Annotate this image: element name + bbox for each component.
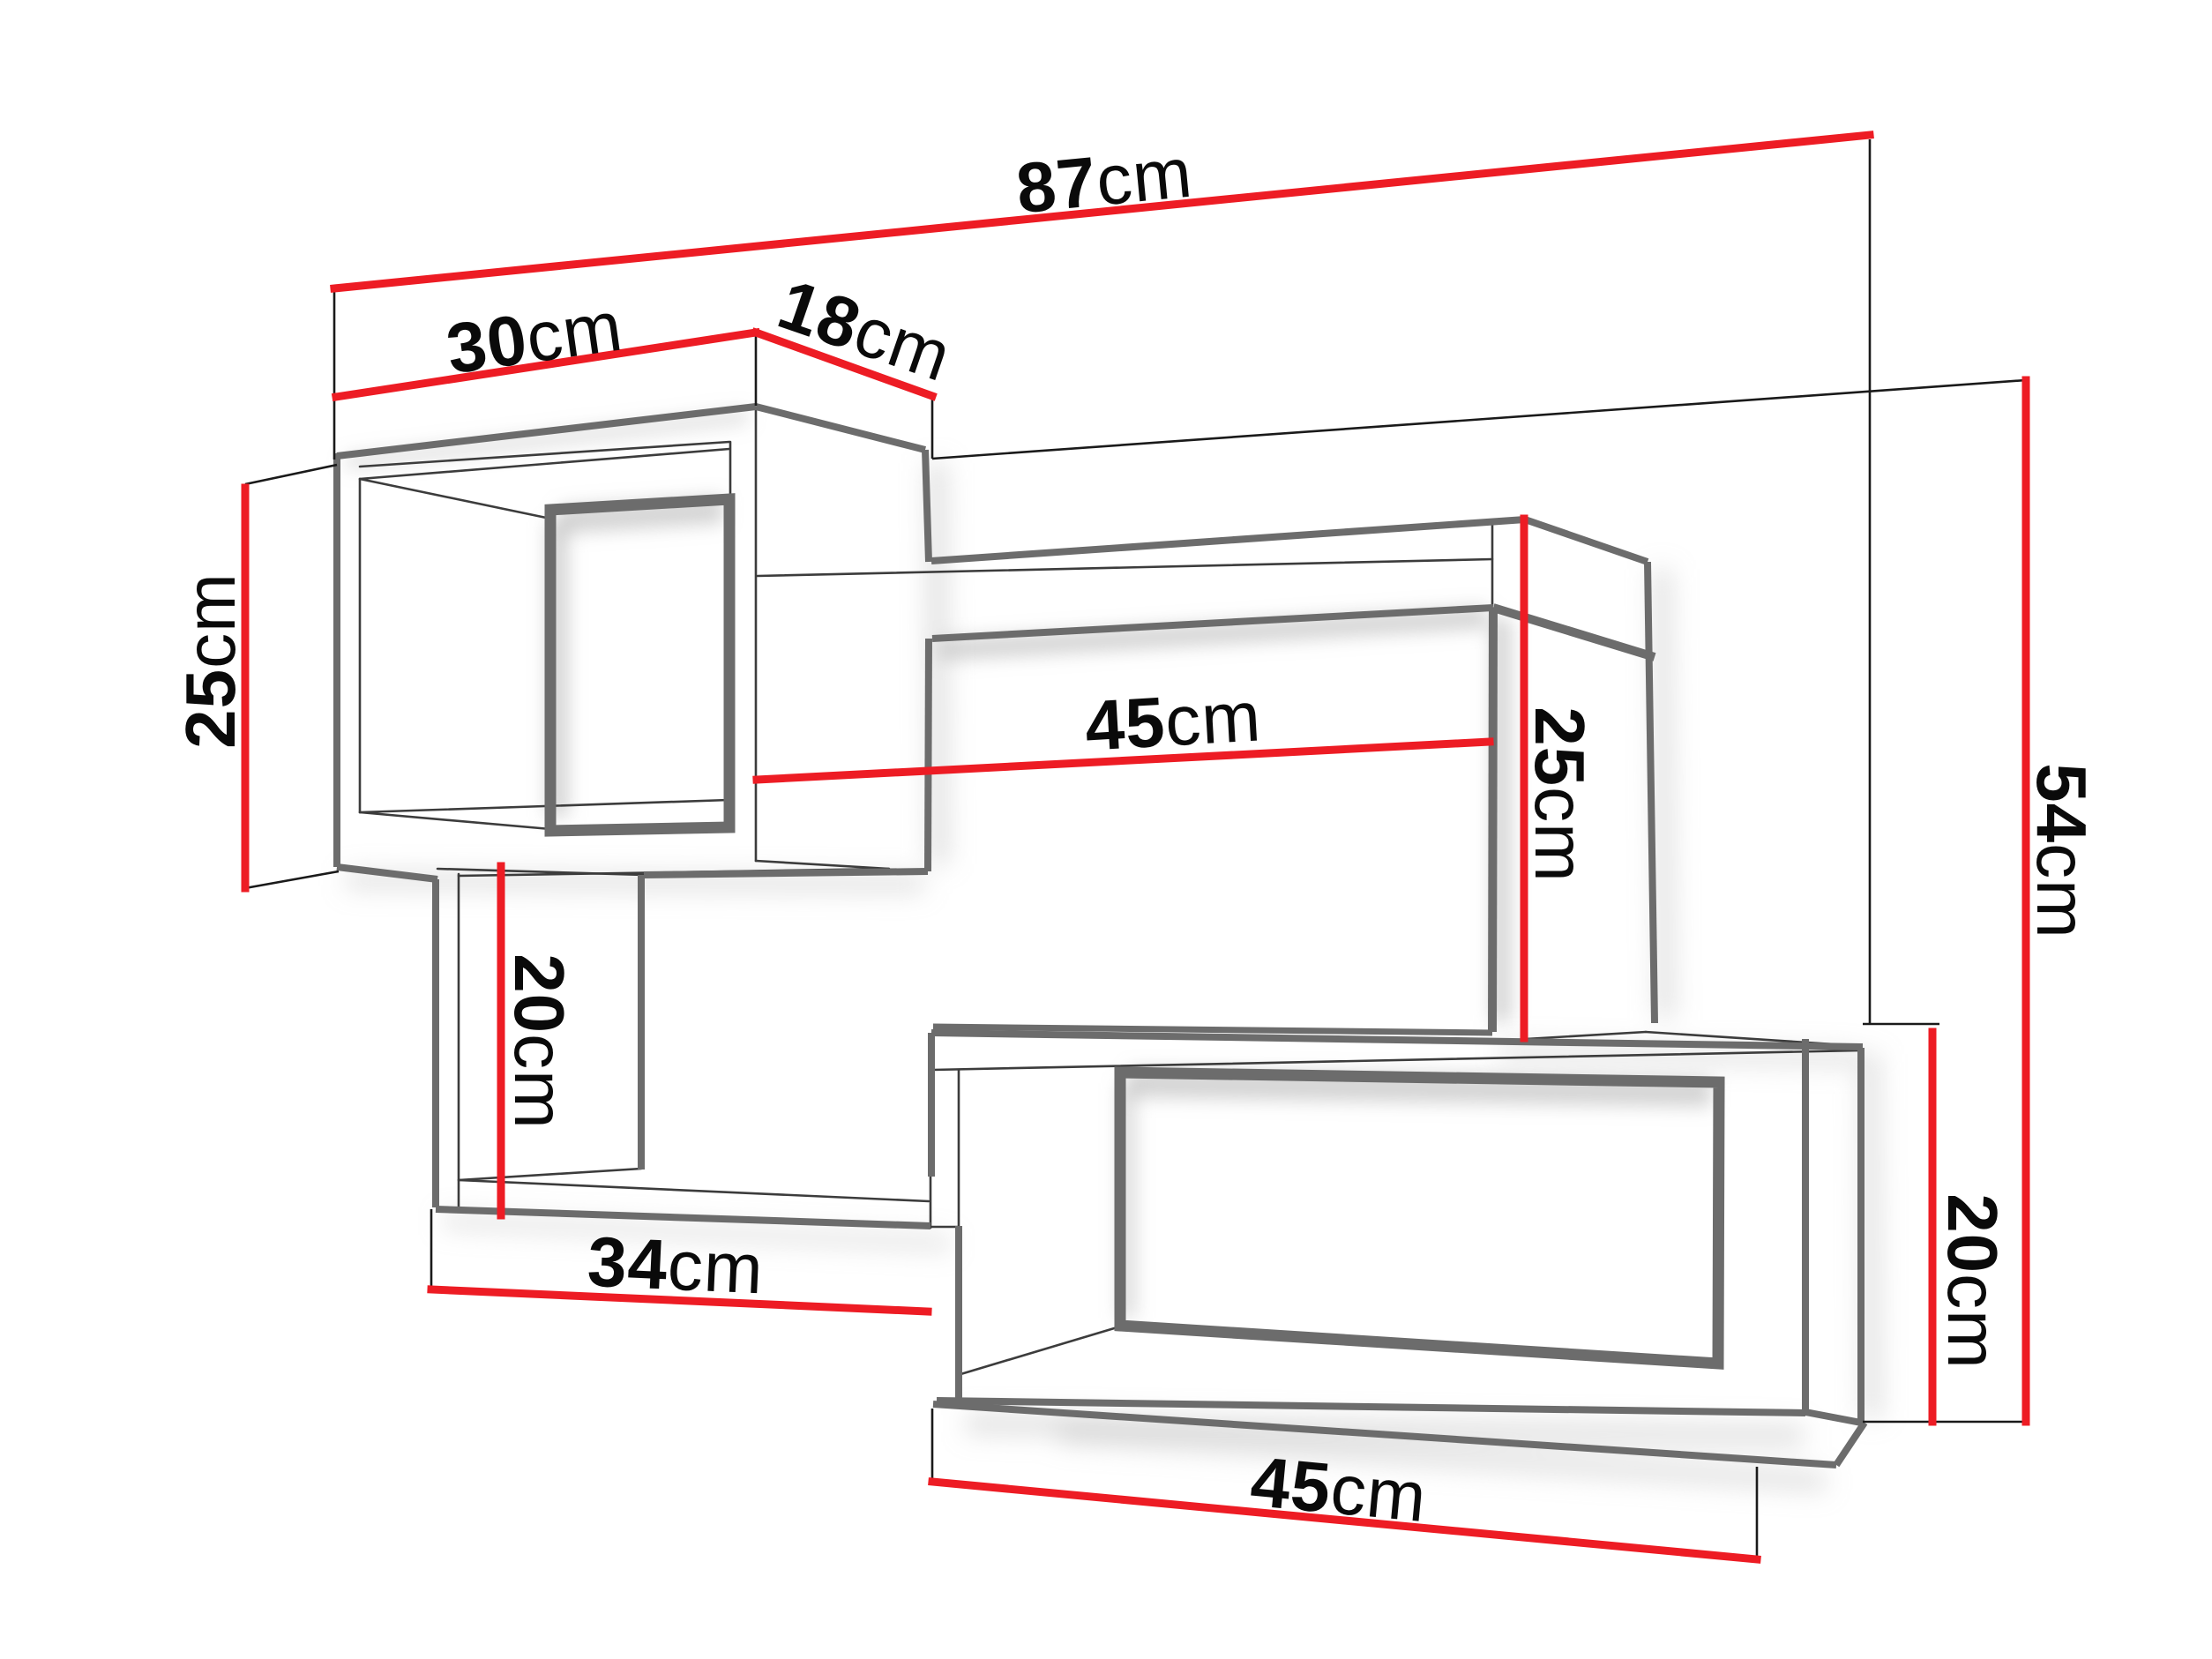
svg-text:20cm: 20cm [1933, 1193, 2012, 1370]
svg-text:45cm: 45cm [1247, 1442, 1430, 1536]
svg-text:25cm: 25cm [1521, 706, 1599, 883]
svg-text:45cm: 45cm [1083, 676, 1263, 765]
svg-text:87cm: 87cm [1013, 133, 1195, 228]
svg-text:25cm: 25cm [171, 572, 250, 749]
svg-text:34cm: 34cm [586, 1222, 765, 1309]
svg-text:54cm: 54cm [2022, 763, 2101, 939]
svg-text:20cm: 20cm [500, 953, 579, 1130]
